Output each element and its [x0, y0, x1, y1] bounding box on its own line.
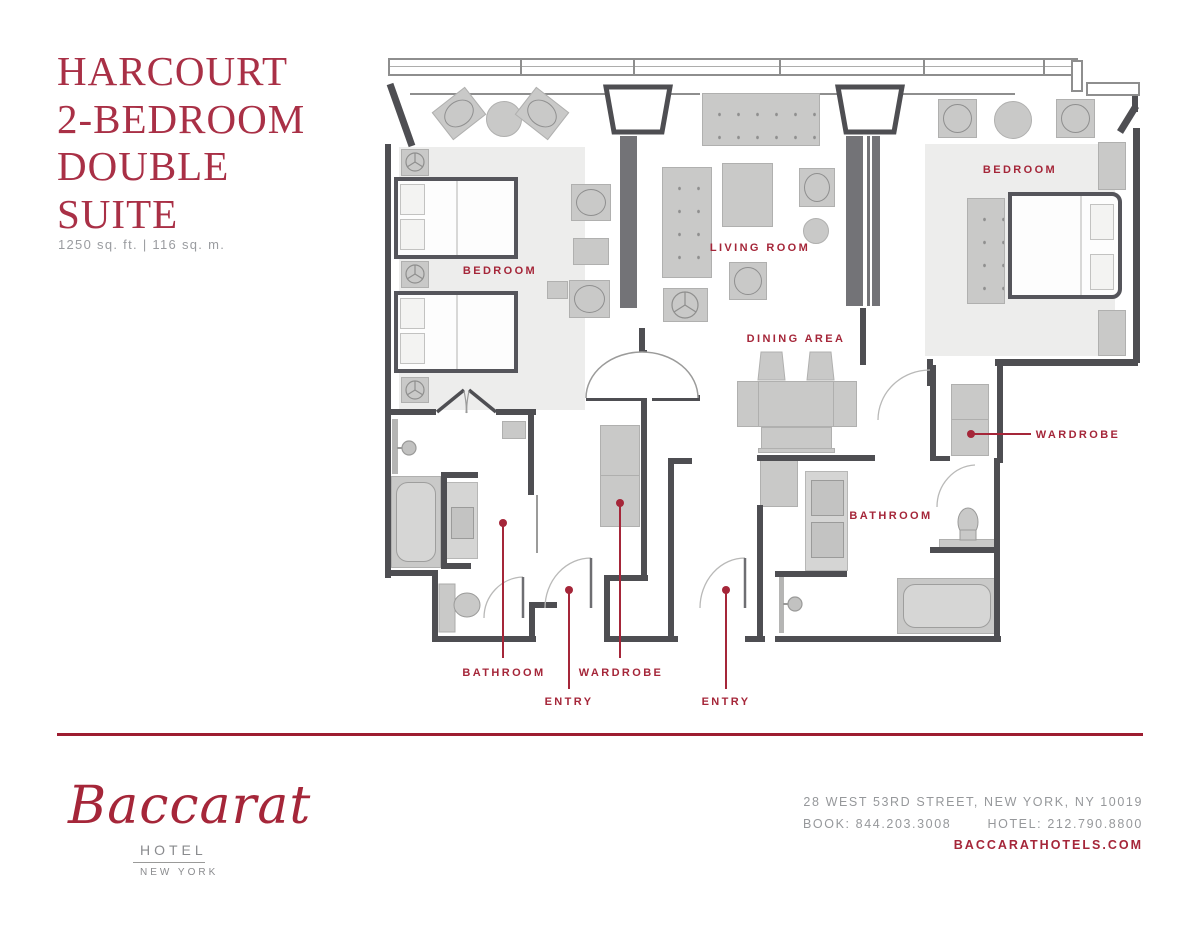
wall — [604, 636, 678, 642]
wall — [775, 571, 847, 577]
armchair — [571, 184, 611, 221]
vanity — [446, 482, 478, 559]
wall — [930, 456, 950, 461]
bathtub — [391, 476, 441, 568]
footer-divider — [57, 733, 1143, 736]
wall — [1132, 96, 1138, 112]
wardrobe-right-unit — [951, 384, 989, 456]
nightstand — [1098, 142, 1126, 190]
chair-cushion — [734, 267, 762, 295]
sink — [811, 522, 844, 558]
bathtub — [897, 578, 997, 634]
dining-bench — [761, 427, 832, 449]
window-mullion — [390, 66, 1076, 67]
wall — [1133, 128, 1140, 363]
label-bedroom-left: BEDROOM — [463, 265, 537, 277]
wall — [529, 602, 557, 608]
wall — [995, 359, 1138, 366]
wall — [385, 570, 438, 576]
window-divider — [633, 60, 635, 74]
wall — [668, 458, 692, 464]
pillow — [400, 219, 425, 250]
chair-cushion — [574, 285, 605, 313]
sheet-fold — [456, 295, 458, 369]
baccarat-logo: Baccarat — [68, 776, 311, 836]
website-text[interactable]: BACCARATHOTELS.COM — [954, 838, 1143, 852]
chair-cushion — [804, 173, 830, 202]
tufted-daybed — [702, 93, 820, 146]
wall — [930, 547, 1000, 553]
wall — [496, 409, 536, 415]
wall — [775, 636, 1001, 642]
label-bathroom-left: BATHROOM — [462, 667, 545, 679]
chair-cushion — [576, 189, 606, 216]
sheet-fold — [456, 181, 458, 255]
logo-hotel-text: HOTEL — [140, 842, 207, 858]
page-title: HARCOURT 2-BEDROOM DOUBLE SUITE — [57, 48, 387, 238]
wall — [757, 455, 875, 461]
wall — [641, 350, 647, 581]
column-slab — [620, 136, 637, 308]
wardrobe-divider — [952, 419, 988, 420]
wall — [994, 458, 1000, 642]
website-link[interactable]: BACCARATHOTELS.COM — [954, 838, 1143, 852]
title-line: 2-BEDROOM — [57, 96, 387, 144]
chair-cushion — [522, 94, 563, 133]
sofa — [662, 167, 712, 278]
nightstand — [1098, 310, 1126, 356]
round-table — [994, 101, 1032, 139]
dining-table — [737, 381, 857, 427]
ottoman — [573, 238, 609, 265]
toilet-right — [958, 508, 978, 540]
pillow — [1090, 254, 1114, 290]
wall — [997, 359, 1003, 463]
armchair — [938, 99, 977, 138]
wall — [668, 458, 674, 642]
shower-rail — [779, 575, 784, 633]
wall — [432, 636, 536, 642]
title-line: DOUBLE — [57, 143, 387, 191]
wall — [586, 395, 642, 401]
bench-base — [758, 448, 835, 453]
window-divider — [779, 60, 781, 74]
bathtub-basin — [903, 584, 991, 628]
chair-cushion — [943, 104, 972, 133]
armchair — [729, 262, 767, 300]
suite-area-text: 1250 sq. ft. | 116 sq. m. — [58, 237, 225, 252]
wall — [860, 308, 866, 365]
wardrobe-center-unit — [600, 425, 640, 527]
wall — [528, 411, 534, 495]
round-side-table — [803, 218, 829, 244]
console-table — [663, 288, 708, 322]
label-bedroom-right: BEDROOM — [983, 164, 1057, 176]
window-band — [388, 58, 1078, 76]
table-leaf-line — [833, 382, 834, 426]
wall — [639, 328, 645, 354]
wall — [930, 365, 936, 461]
wall — [441, 472, 447, 569]
wall — [757, 505, 763, 642]
column-slab — [846, 136, 863, 306]
window-band-right — [1086, 82, 1140, 96]
wall — [432, 570, 438, 642]
dining-chairs — [758, 352, 834, 380]
label-wardrobe-right: WARDROBE — [1036, 429, 1121, 441]
label-dining-area: DINING AREA — [747, 333, 846, 345]
window-divider — [923, 60, 925, 74]
nightstand — [401, 149, 429, 176]
wall — [529, 602, 535, 642]
phone-line: BOOK: 844.203.3008 HOTEL: 212.790.8800 — [803, 817, 1143, 831]
label-wardrobe-center: WARDROBE — [579, 667, 664, 679]
hotel-address: 28 WEST 53RD STREET, NEW YORK, NY 10019 — [803, 795, 1143, 809]
chair-cushion — [1061, 104, 1090, 133]
shower-rail — [392, 419, 398, 474]
label-bathroom-right: BATHROOM — [849, 510, 932, 522]
label-living-room: LIVING ROOM — [710, 242, 810, 254]
column-slab — [872, 136, 880, 306]
armchair — [799, 168, 835, 207]
tufted-bench — [967, 198, 1005, 304]
armchair — [569, 280, 610, 318]
wall — [652, 395, 700, 401]
column-slab — [867, 136, 870, 306]
hotel-phone: HOTEL: 212.790.8800 — [988, 817, 1144, 831]
armchair — [1056, 99, 1095, 138]
round-table — [486, 101, 522, 137]
wall — [604, 575, 610, 642]
pillow — [400, 184, 425, 215]
label-entry-right: ENTRY — [702, 696, 751, 708]
wall — [441, 563, 471, 569]
pillow — [400, 298, 425, 329]
bathtub-basin — [396, 482, 436, 562]
window-divider — [520, 60, 522, 74]
pillow — [400, 333, 425, 364]
shelf — [502, 421, 526, 439]
bed-double-2 — [394, 291, 518, 373]
toilet-left — [439, 584, 480, 632]
logo-rule — [133, 862, 205, 863]
title-line: HARCOURT — [57, 48, 387, 96]
nightstand — [401, 377, 429, 403]
coffee-table — [722, 163, 773, 227]
sink — [451, 507, 474, 539]
bed-king — [1008, 192, 1122, 299]
side-table — [547, 281, 568, 299]
label-entry-left: ENTRY — [545, 696, 594, 708]
title-line: SUITE — [57, 191, 387, 239]
storage-unit — [760, 460, 798, 507]
floorplan-page: HARCOURT 2-BEDROOM DOUBLE SUITE 1250 sq.… — [0, 0, 1200, 927]
wall — [386, 409, 436, 415]
vanity-double — [805, 471, 848, 571]
bed-double-1 — [394, 177, 518, 259]
sheet-fold — [1080, 196, 1082, 295]
table-leaf-line — [758, 382, 759, 426]
window-divider — [1043, 60, 1045, 74]
pillow — [1090, 204, 1114, 240]
sink — [811, 480, 844, 516]
nightstand — [401, 261, 429, 288]
wall — [385, 144, 391, 578]
book-phone: BOOK: 844.203.3008 — [803, 817, 951, 831]
chair-cushion — [439, 94, 480, 133]
logo-city-text: NEW YORK — [140, 867, 218, 878]
wardrobe-divider — [601, 475, 639, 476]
window-corner — [1071, 60, 1083, 92]
